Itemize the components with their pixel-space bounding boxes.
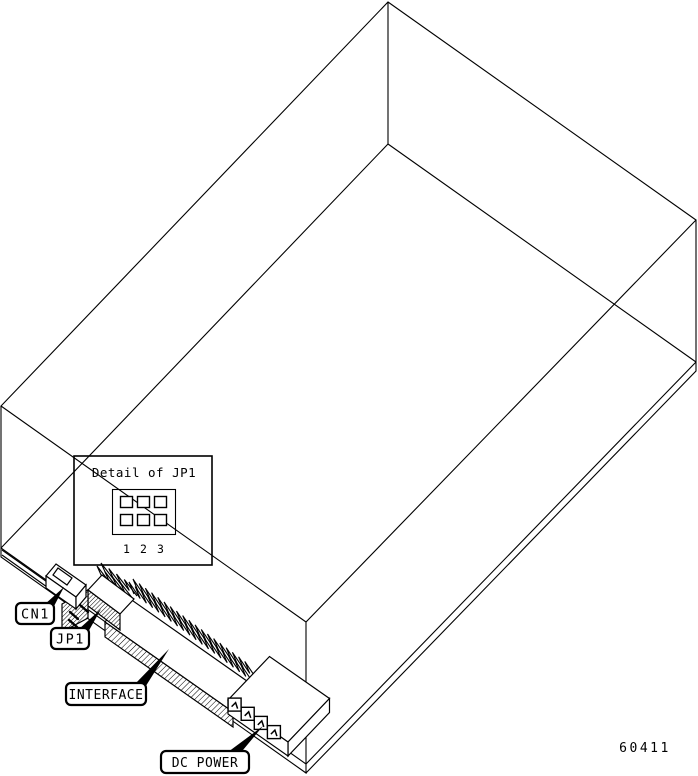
jumper-pin-grid [121, 497, 167, 526]
inset-title: Detail of JP1 [92, 465, 196, 480]
interface-label: INTERFACE [69, 688, 144, 703]
jumper-pin-number-2: 2 [140, 542, 147, 556]
cn1-wires [2, 550, 50, 587]
chassis-top-face [1, 2, 696, 622]
chassis-bottom-face [1, 144, 696, 764]
chassis-wireframe [1, 2, 696, 773]
chassis-base-flange [1, 362, 696, 773]
cn1-label: CN1 [21, 607, 50, 623]
drawing-canvas: Detail of JP1 1 2 3 CN1 JP1 INTERFACE DC… [0, 0, 698, 776]
jp1-label: JP1 [56, 632, 85, 648]
inset-detail-box: Detail of JP1 1 2 3 [74, 456, 212, 565]
figure-number: 60411 [619, 741, 671, 756]
hardware-line-drawing: Detail of JP1 1 2 3 CN1 JP1 INTERFACE DC… [0, 0, 698, 776]
jumper-pin-number-3: 3 [157, 542, 164, 556]
jumper-pin-number-1: 1 [123, 542, 130, 556]
dc-power-label: DC POWER [172, 756, 239, 771]
